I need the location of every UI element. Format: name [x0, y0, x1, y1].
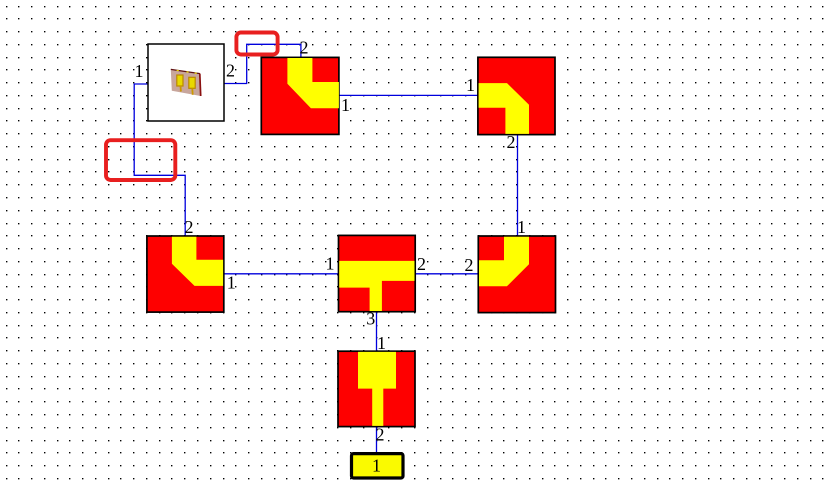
svg-text:2: 2: [376, 425, 385, 445]
svg-text:2: 2: [185, 217, 194, 237]
svg-text:1: 1: [372, 455, 381, 475]
svg-text:3: 3: [366, 309, 375, 329]
svg-text:1: 1: [326, 254, 335, 274]
svg-text:2: 2: [465, 255, 474, 275]
svg-text:1: 1: [341, 95, 350, 115]
svg-text:2: 2: [226, 61, 235, 81]
svg-text:1: 1: [227, 273, 236, 293]
svg-text:1: 1: [377, 333, 386, 353]
svg-text:2: 2: [300, 38, 309, 58]
svg-text:1: 1: [135, 61, 144, 81]
svg-text:1: 1: [517, 217, 526, 237]
svg-text:2: 2: [507, 132, 516, 152]
svg-text:2: 2: [417, 254, 426, 274]
svg-text:1: 1: [466, 75, 475, 95]
